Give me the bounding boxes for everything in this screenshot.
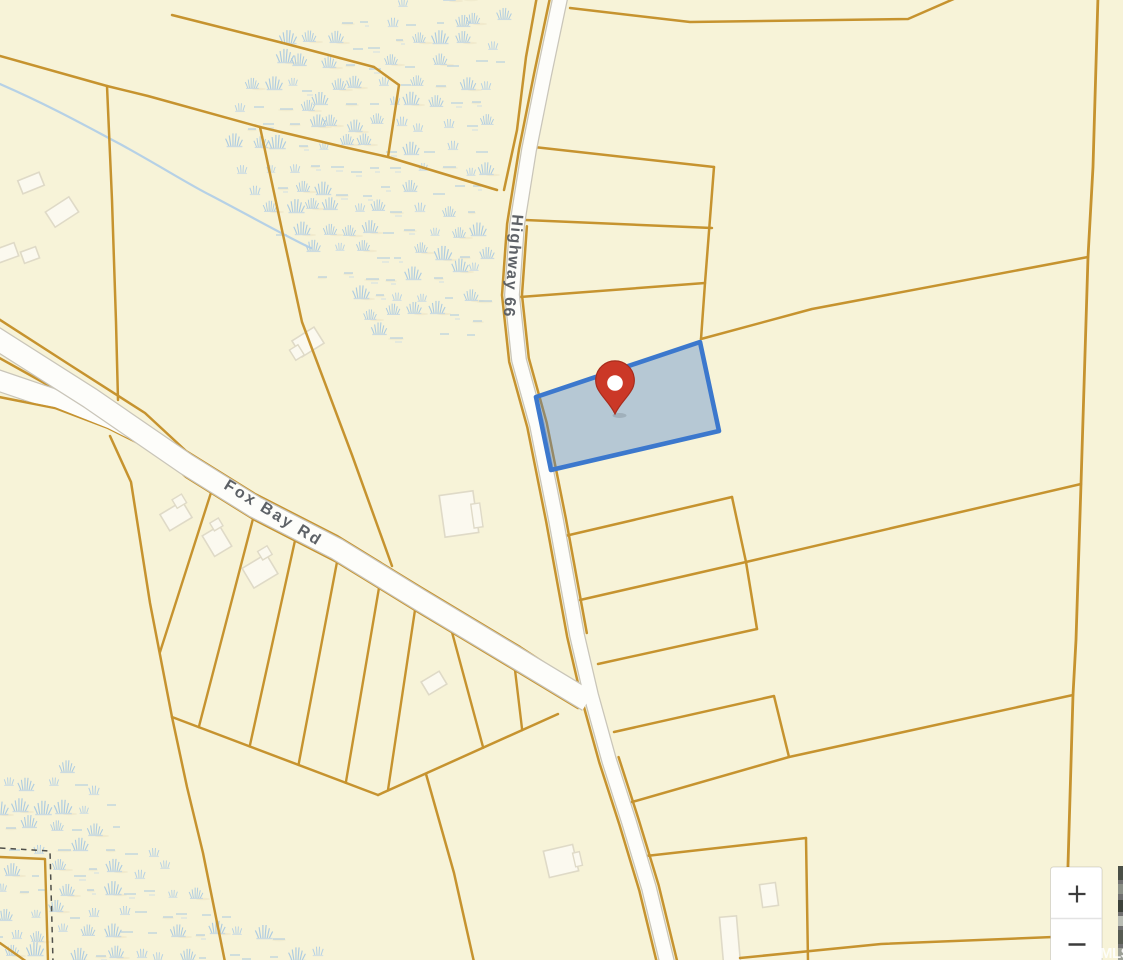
svg-text:MLS: MLS: [1100, 945, 1123, 960]
